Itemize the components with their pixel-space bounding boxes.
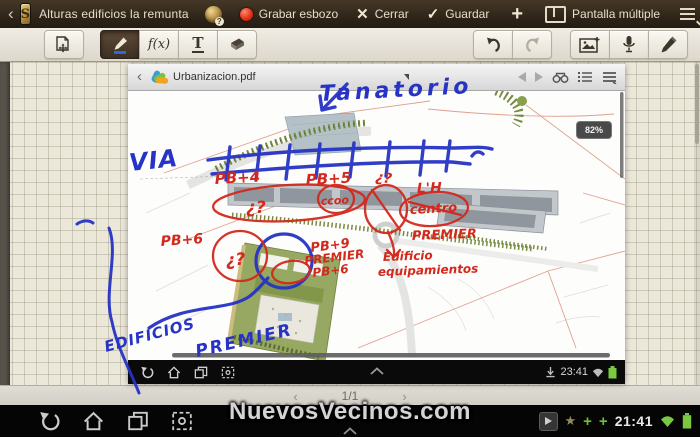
star-status-icon: ★ [565,413,577,429]
nav-expand-chevron-icon[interactable] [342,427,358,435]
pdf-menu-icon[interactable] [602,71,617,84]
embedded-expand-chevron-icon [369,367,385,375]
map-park-block [229,243,340,360]
embedded-status-bar: 23:41 [128,360,625,384]
formula-tool-button[interactable]: f(x) [139,30,179,59]
undo-icon [484,36,503,53]
embedded-recents-icon [194,366,208,379]
redo-icon [523,36,542,53]
embedded-back-icon [140,366,154,379]
battery-status-icon [682,413,692,429]
next-page-chevron[interactable]: › [402,389,406,404]
undo-button[interactable] [473,30,513,59]
pdf-search-binoculars-icon[interactable] [552,71,569,84]
save-button[interactable]: ✓ Guardar [425,5,492,23]
pdf-filename: Urbanizacion.pdf [173,71,256,83]
pdf-prev-page-icon[interactable] [518,72,526,82]
note-canvas[interactable]: ‹ Urbanizacion.pdf [0,62,700,405]
polaris-office-logo-icon [149,70,166,85]
undo-redo-group [473,30,552,59]
tools-toolbar: f(x) T [0,28,700,62]
eraser-tool-button[interactable] [217,30,257,59]
nav-screenshot-button[interactable] [171,411,193,431]
handwriting-button[interactable] [648,30,688,59]
note-title: Alturas edificios la remunta [39,7,189,21]
pdf-horizontal-scrollbar[interactable] [172,353,610,358]
pdf-next-page-icon[interactable] [535,72,543,82]
snote-app-icon: S [20,3,31,25]
embedded-home-icon [167,366,181,379]
voice-memo-button[interactable] [609,30,649,59]
embedded-battery-icon [608,366,617,379]
pdf-vertical-scrollbar[interactable] [620,92,624,178]
pdf-map-page[interactable]: 82% [128,91,625,360]
site-plan-map [128,91,625,360]
close-button[interactable]: ✕ Cerrar [354,5,411,23]
microphone-icon [622,35,636,54]
pdf-outline-list-icon[interactable] [578,71,593,83]
pdf-viewer-window[interactable]: ‹ Urbanizacion.pdf [128,64,625,383]
notification-app-icon [539,412,558,431]
embedded-wifi-icon [592,367,604,378]
help-button[interactable] [203,6,224,23]
text-tool-icon: T [192,36,203,54]
close-label: Cerrar [375,7,409,21]
page-move-icon [54,36,74,54]
embedded-download-icon [545,366,556,378]
multi-window-button[interactable]: Pantalla múltiple [543,6,662,23]
insert-object-button[interactable] [44,30,84,59]
back-icon[interactable]: ‹ [0,5,20,24]
canvas-scrollbar[interactable] [694,62,700,405]
eraser-icon [227,37,247,53]
pdf-viewer-header: ‹ Urbanizacion.pdf [128,64,625,91]
nav-back-button[interactable] [38,411,60,431]
page-indicator: 1/1 [342,389,359,403]
pen-brush-icon [110,35,130,55]
pencil-icon [659,35,678,54]
embedded-clock: 23:41 [560,366,588,378]
redo-button[interactable] [512,30,552,59]
plus-status-icon: + [599,414,608,429]
embedded-screenshot-icon [221,366,235,379]
prev-page-chevron[interactable]: ‹ [293,389,297,404]
snote-app-screen: ‹ S Alturas edificios la remunta Grabar … [0,0,700,437]
check-icon: ✓ [427,5,440,23]
save-label: Guardar [445,7,489,21]
zoom-level-badge: 82% [576,121,612,139]
nav-recents-button[interactable] [127,411,149,431]
add-page-button[interactable]: + [505,4,529,24]
pen-tool-button[interactable] [100,30,140,59]
record-label: Grabar esbozo [259,7,338,21]
plus-status-icon: + [583,414,592,429]
pdf-back-icon[interactable]: ‹ [128,68,149,87]
multi-window-label: Pantalla múltiple [572,7,660,21]
map-pond [285,113,361,155]
formula-icon: f(x) [148,37,170,52]
text-tool-button[interactable]: T [178,30,218,59]
overflow-menu-button[interactable] [676,8,700,21]
filename-dropdown-icon[interactable] [404,74,409,80]
canvas-left-edge [0,62,10,405]
help-globe-icon [205,6,222,23]
system-clock: 21:41 [615,413,653,429]
system-navigation-bar: ★ + + 21:41 [0,405,700,437]
app-bar: ‹ S Alturas edificios la remunta Grabar … [0,0,700,28]
insert-image-button[interactable] [570,30,610,59]
image-add-icon [579,36,601,53]
nav-home-button[interactable] [82,411,105,431]
page-navigation-bar: ‹ 1/1 › [0,385,700,406]
close-icon: ✕ [356,5,369,23]
record-icon [240,8,253,21]
wifi-status-icon [660,414,675,428]
split-screen-icon [545,6,566,23]
record-sketch-button[interactable]: Grabar esbozo [238,7,340,21]
